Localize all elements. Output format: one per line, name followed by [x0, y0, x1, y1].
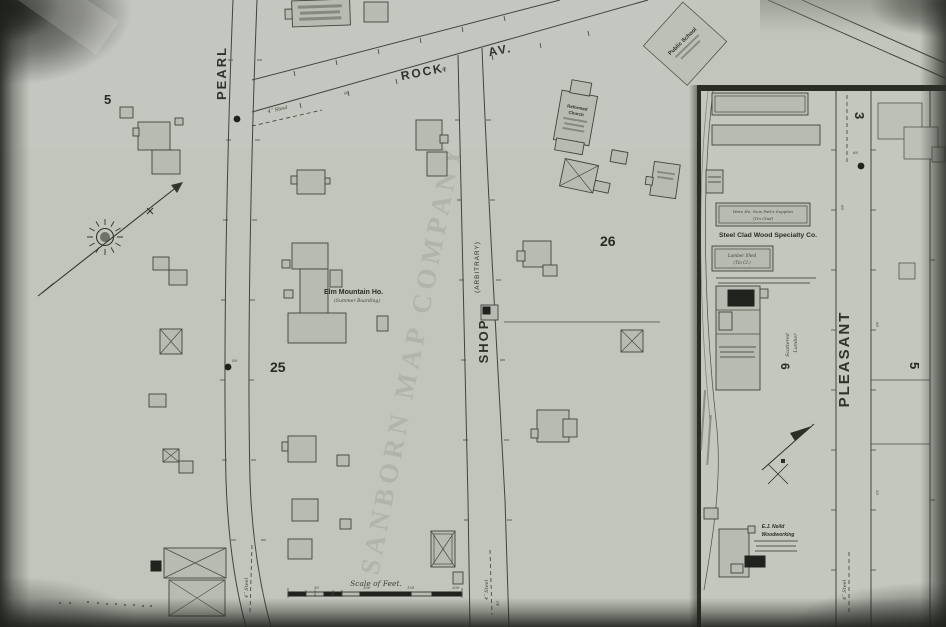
scale-tick: 200: [451, 585, 460, 590]
warehouse-box: Ware Ho. New Patt's Supplies (Tin Clad): [716, 203, 810, 226]
lot-number: 50: [875, 490, 880, 496]
hydrant-dot: [858, 163, 865, 170]
scale-title: Scale of Feet.: [350, 579, 402, 588]
hydrant-dot: [225, 364, 232, 371]
lumber-shed-box: Lumber Shed (Tin Cl.): [712, 246, 773, 271]
street-label-pleasant: PLEASANT: [836, 311, 853, 408]
block-number-6: 6: [778, 363, 792, 370]
scale-tick: 100: [363, 585, 371, 590]
street-label-shop-note: (ARBITRARY): [474, 241, 481, 293]
block-number-5-left: 5: [104, 92, 111, 107]
neild-label-2: Woodworking: [762, 532, 795, 538]
rooftop-label-building: [285, 0, 351, 27]
lumber-shed-label-2: (Tin Cl.): [733, 260, 751, 265]
pipe-note: 4˝ Steel: [483, 579, 490, 601]
pipe-size-3: 3: [852, 112, 867, 119]
scattered-lumber-1: Scattered: [785, 333, 791, 357]
inset-left-border: [697, 85, 701, 627]
pipe-note: 4˝ Steel: [243, 577, 250, 599]
inset-top-border: [697, 85, 946, 91]
warehouse-label-2: (Tin Clad): [753, 216, 774, 221]
street-label-shop: SHOP: [476, 319, 491, 364]
steel-clad-label: Steel Clad Wood Specialty Co.: [719, 232, 817, 239]
lot-number: 60: [840, 205, 845, 211]
double-border-x-building: [431, 531, 455, 567]
pipe-size-note: 50: [232, 358, 238, 363]
pipe-note: 4˝ Steel: [841, 579, 848, 601]
inset-sheet-shadow: [689, 85, 698, 627]
scale-tick: 50: [314, 585, 319, 590]
lot-number: 60: [853, 150, 859, 155]
elm-mountain-sublabel: (Summer Boarding): [334, 297, 380, 304]
small-office: [706, 170, 723, 193]
hydrant-dot: [234, 116, 241, 123]
lot-number: 60: [875, 322, 880, 328]
lot-number: 40: [495, 600, 500, 607]
block-number-26: 26: [600, 233, 616, 249]
map-photo: SANBORN MAP COMPANY 4˝ Steel 50 4˝ Steel: [0, 0, 946, 627]
sanborn-map-canvas: SANBORN MAP COMPANY 4˝ Steel 50 4˝ Steel: [0, 0, 946, 627]
block-number-5-right: 5: [907, 362, 922, 369]
scattered-lumber-2: Lumber: [793, 333, 799, 354]
scale-tick: 150: [407, 585, 415, 590]
x-box-on-lot-line: [621, 330, 643, 352]
street-label-pearl: PEARL: [214, 46, 229, 100]
warehouse-label-1: Ware Ho. New Patt's Supplies: [733, 209, 794, 214]
barn-x-building: [160, 329, 182, 354]
neild-label-1: E.J. Neild: [762, 524, 785, 530]
elm-mountain-label: Elm Mountain Ho.: [324, 289, 383, 296]
machine-shop: [716, 286, 768, 390]
lumber-shed-label-1: Lumber Shed: [727, 253, 757, 258]
inset-sheet: PLEASANT 60 60 50 3 60 4˝ Steel Ware Ho.…: [697, 85, 946, 627]
street-edge-building: [481, 305, 498, 320]
block-number-25: 25: [270, 359, 286, 375]
